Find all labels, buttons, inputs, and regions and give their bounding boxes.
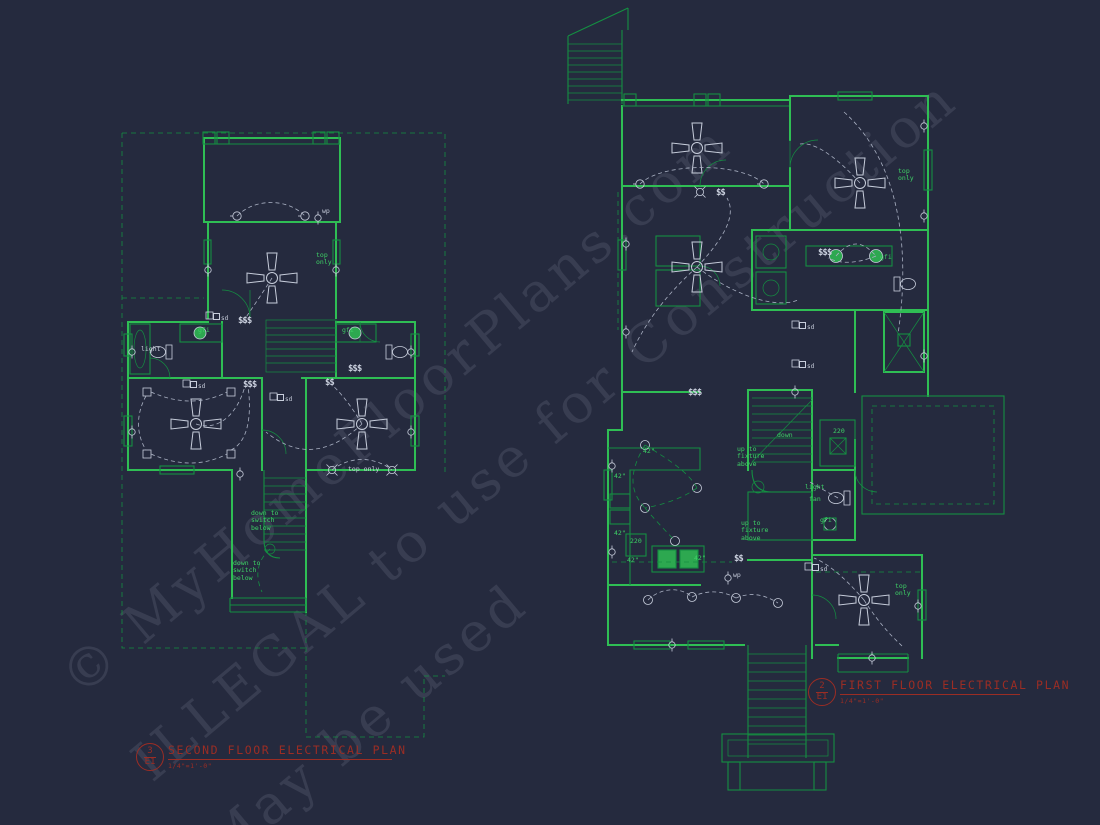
plan-title: FIRST FLOOR ELECTRICAL PLAN: [840, 678, 1020, 695]
first-floor-electrical: [609, 112, 927, 665]
rear-deck: [862, 396, 1004, 514]
second-floor-doors: [150, 290, 380, 454]
second-floor-electrical: [129, 203, 414, 593]
upper-deck: [203, 132, 340, 222]
master-bath: [806, 246, 916, 291]
plan-title: SECOND FLOOR ELECTRICAL PLAN: [168, 743, 392, 760]
detail-number: 2: [816, 682, 827, 692]
bay-window: [838, 654, 908, 672]
second-floor-plan: [122, 132, 445, 737]
roof-outline-dashed: [122, 133, 445, 737]
second-floor-stair: [264, 470, 306, 558]
front-porch: [622, 94, 790, 186]
cad-drawing-canvas: © MyHomeFloorPlans.comILLEGAL to use for…: [0, 0, 1100, 825]
first-floor-stair: [752, 398, 812, 493]
closets-laundry: [656, 236, 920, 572]
rear-stair-bottom: [722, 645, 834, 790]
plan-scale: 1/4"=1'-0": [840, 697, 1020, 705]
detail-ref-bubble: 3 E1: [136, 743, 164, 771]
entry-stair-top: [568, 8, 628, 104]
first-floor-plan: [568, 8, 1004, 790]
utility-shower: [820, 312, 924, 466]
first-floor-doors: [700, 140, 877, 619]
first-floor-walls: [604, 92, 932, 658]
second-floor-titleblock: 3 E1 SECOND FLOOR ELECTRICAL PLAN 1/4"=1…: [136, 743, 392, 771]
detail-number: 3: [144, 747, 155, 757]
kitchen: [608, 448, 704, 585]
sheet-number: E1: [145, 758, 156, 767]
first-floor-titleblock: 2 E1 FIRST FLOOR ELECTRICAL PLAN 1/4"=1'…: [808, 678, 1020, 706]
smoke-detector-symbols-ff: [792, 321, 812, 570]
powder-room: [824, 491, 850, 530]
plan-scale: 1/4"=1'-0": [168, 762, 392, 770]
detail-ref-bubble: 2 E1: [808, 678, 836, 706]
sheet-number: E1: [817, 693, 828, 702]
